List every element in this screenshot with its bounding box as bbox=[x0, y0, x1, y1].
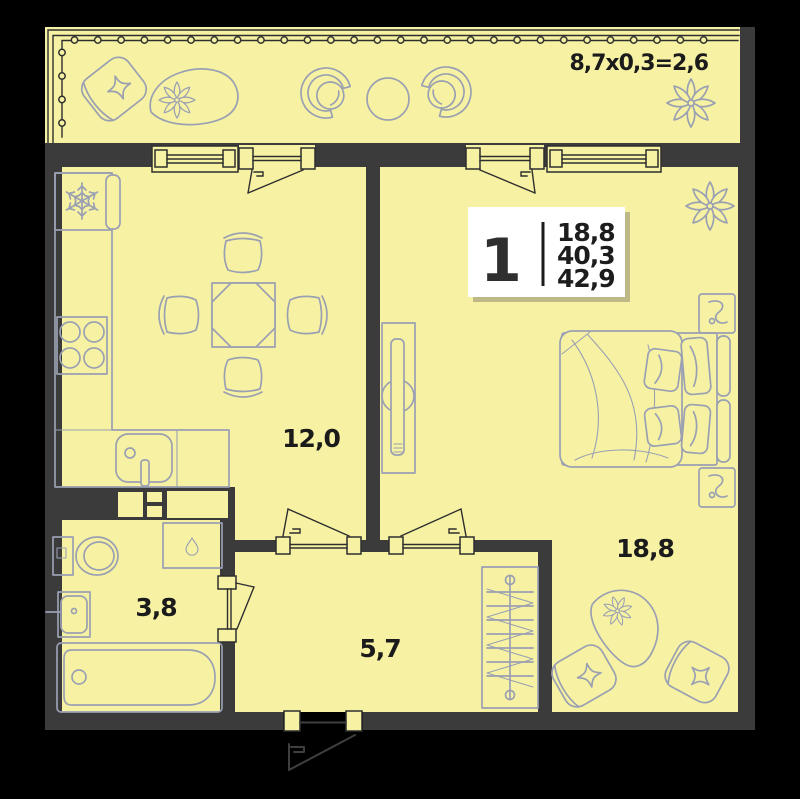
floor-plan: 8,7x0,3=2,6 bbox=[0, 0, 800, 799]
wall-kitchen-bedroom bbox=[366, 167, 380, 552]
room-count: 1 bbox=[480, 226, 522, 296]
pillow bbox=[644, 405, 682, 447]
pillow bbox=[643, 348, 682, 392]
pillow bbox=[681, 337, 712, 395]
total-area-value: 42,9 bbox=[557, 264, 615, 293]
vent-shaft bbox=[147, 492, 162, 502]
wall-right bbox=[738, 143, 755, 730]
balcony-dimension-label: 8,7x0,3=2,6 bbox=[569, 51, 708, 76]
bedroom-plant bbox=[686, 182, 734, 230]
bedroom-window bbox=[547, 146, 661, 172]
wall-left bbox=[45, 143, 62, 730]
wall-bottom bbox=[45, 712, 755, 730]
headboard bbox=[717, 336, 730, 396]
wall-niche bbox=[167, 491, 228, 518]
kitchen-living-area-label: 12,0 bbox=[282, 424, 340, 453]
wall-balcony-right bbox=[740, 27, 755, 143]
flower-icon bbox=[686, 182, 734, 230]
bathroom-area-label: 3,8 bbox=[135, 593, 176, 622]
vent-shaft bbox=[147, 506, 162, 517]
standing-mirror bbox=[382, 323, 415, 473]
kitchen-window bbox=[152, 146, 238, 172]
bedroom-area-label: 18,8 bbox=[616, 534, 674, 563]
balcony-railing-posts-top bbox=[70, 36, 722, 45]
flower-icon bbox=[159, 82, 195, 118]
flower-icon bbox=[667, 79, 715, 127]
wall-hallway-bedroom bbox=[538, 552, 552, 712]
pillow bbox=[681, 404, 711, 454]
balcony-plant bbox=[667, 79, 715, 127]
headboard bbox=[717, 400, 730, 462]
balcony-railing-posts-left bbox=[58, 48, 67, 138]
vent-shaft bbox=[118, 492, 143, 517]
balcony-round-table bbox=[367, 78, 409, 120]
info-box: 1 18,8 40,3 42,9 bbox=[468, 207, 630, 302]
floor-plan-svg: 8,7x0,3=2,6 bbox=[0, 0, 800, 799]
balcony: 8,7x0,3=2,6 bbox=[45, 27, 740, 143]
hallway-area-label: 5,7 bbox=[359, 634, 400, 663]
